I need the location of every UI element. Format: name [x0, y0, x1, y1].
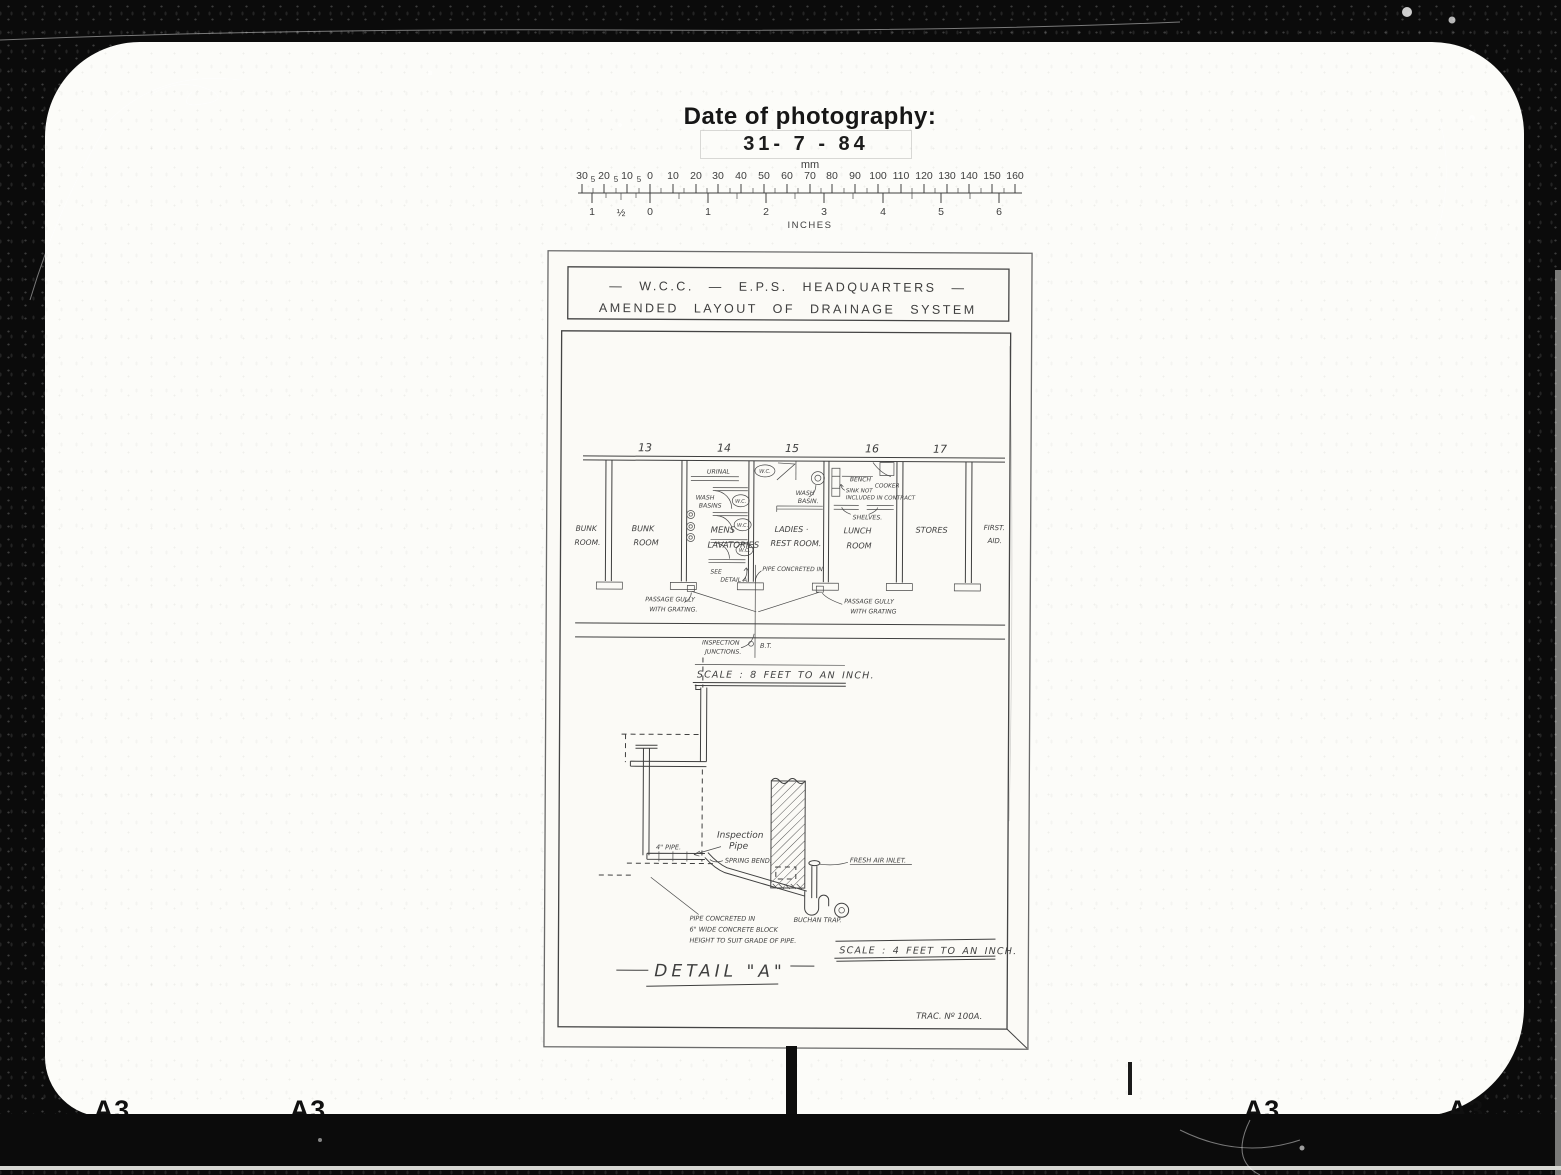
scale-ruler: mm 30 20 10 5 5 5 0 10 20 30 40 50 60 70…: [555, 150, 1035, 235]
ruler-mm-label: 160: [1006, 170, 1024, 182]
urinal-label: URINAL: [707, 469, 731, 476]
ruler-inch-label: 1: [589, 206, 595, 218]
inspection-pipe-label-1: Inspection: [717, 831, 764, 841]
concrete-note-1: PIPE CONCRETED IN: [690, 914, 756, 922]
ruler-inch-label: 6: [996, 206, 1002, 218]
cooker-label: COOKER: [875, 483, 900, 489]
ruler-mm-label: 150: [983, 170, 1001, 182]
ruler-inch-label: 4: [880, 206, 886, 218]
film-bottom-border: [0, 1114, 1561, 1166]
ruler-mm-label: 80: [826, 170, 838, 182]
ruler-mm-label: 30: [712, 170, 724, 182]
date-of-photography-label: Date of photography:: [660, 103, 960, 131]
gully-left-label-2: WITH GRATING.: [649, 606, 697, 613]
room-label: FIRST.: [984, 524, 1005, 532]
room-label: LADIES ·: [775, 525, 809, 534]
gully-right-label-2: WITH GRATING: [850, 608, 896, 615]
ruler-inch-major-ticks: [592, 193, 999, 203]
wc-label: W.C.: [737, 523, 748, 529]
detail-scale-text: SCALE : 4 FEET TO AN INCH.: [839, 945, 1017, 957]
spring-bend-label: SPRING BEND.: [725, 857, 772, 865]
gully-left-label-1: PASSAGE GULLY: [645, 596, 696, 603]
film-right-edge: [1555, 270, 1561, 1175]
see-detail-label-1: SEE: [710, 569, 722, 576]
wash-basins-label-1: WASH: [696, 495, 715, 502]
grid-number: 16: [865, 442, 879, 455]
room-label: REST ROOM.: [771, 539, 822, 548]
ruler-mm-label: 40: [735, 170, 747, 182]
room-label: AID.: [987, 537, 1003, 545]
ruler-mm-label: 20: [598, 170, 610, 182]
ruler-mm-label: 10: [621, 170, 633, 182]
ruler-inch-minor-ticks: [606, 193, 970, 200]
wc-label: W.C.: [735, 499, 746, 505]
registration-tick: [1128, 1062, 1132, 1095]
room-label: ROOM: [847, 541, 872, 550]
room-label: ROOM: [634, 538, 659, 547]
sink-note-1: SINK NOT: [846, 488, 873, 494]
sheet-outer-border: [544, 251, 1032, 1050]
bt-label: B.T.: [760, 642, 772, 650]
ruler-mm-label-small: 5: [591, 175, 596, 184]
room-label: LUNCH: [844, 526, 872, 535]
ruler-mm-label: 140: [960, 170, 978, 182]
ruler-mm-minor-ticks: [593, 188, 1004, 193]
fresh-air-inlet-label: FRESH AIR INLET.: [850, 856, 906, 864]
ruler-mm-label: 90: [849, 170, 861, 182]
ruler-mm-label: 100: [869, 170, 887, 182]
pipe-concreted-label: PIPE CONCRETED IN.: [762, 566, 825, 573]
wash-basin-label-2: BASIN.: [798, 498, 819, 505]
concrete-note-2: 6" WIDE CONCRETE BLOCK: [690, 925, 779, 933]
film-sync-bar: [786, 1046, 797, 1116]
ruler-mm-label: 70: [804, 170, 816, 182]
sink-note-2: INCLUDED IN CONTRACT: [846, 495, 916, 501]
ruler-mm-label-small: 5: [637, 175, 642, 184]
wash-basins-label-2: BASINS: [699, 503, 722, 510]
room-label: LAVATORIES: [708, 541, 760, 551]
ruler-mm-label: 110: [893, 170, 910, 182]
ruler-inch-label: 2: [763, 206, 769, 218]
sheet-title-line2: AMENDED LAYOUT OF DRAINAGE SYSTEM: [599, 301, 977, 317]
ruler-mm-label: 120: [915, 170, 933, 182]
ruler-mm-major-ticks: [582, 184, 1015, 193]
inspection-label-1: INSPECTION: [702, 640, 740, 647]
room-label: MENS: [711, 526, 736, 536]
ruler-mm-label: 50: [758, 170, 770, 182]
ruler-inch-label: 3: [821, 206, 827, 218]
ruler-inch-label: 1: [705, 206, 711, 218]
ruler-mm-label: 30: [576, 170, 588, 182]
room-label: BUNK: [632, 524, 655, 533]
ruler-mm-label: 10: [667, 170, 679, 182]
tracing-number: TRAC. Nº 100A.: [916, 1012, 982, 1022]
ruler-inch-label: ½: [617, 207, 626, 219]
wash-basin-label-1: WASH: [796, 490, 815, 497]
grid-number: 13: [638, 441, 652, 454]
concrete-note-3: HEIGHT TO SUIT GRADE OF PIPE.: [689, 936, 796, 945]
inspection-pipe-label-2: Pipe: [729, 842, 749, 852]
four-inch-pipe-label: 4" PIPE.: [656, 843, 681, 851]
detail-title: DETAIL "A": [654, 961, 786, 982]
grid-number: 17: [933, 443, 947, 456]
ruler-mm-label: 130: [938, 170, 956, 182]
ruler-mm-label: 60: [781, 170, 793, 182]
ruler-inch-label: 5: [938, 206, 944, 218]
buchan-trap-label: BUCHAN TRAP.: [794, 916, 842, 924]
microfilm-frame: Date of photography: 31- 7 - 84 mm 30 20…: [0, 0, 1561, 1175]
sheet-title-line1: — W.C.C. — E.P.S. HEADQUARTERS —: [609, 279, 966, 295]
bench-label: BENCH: [850, 476, 872, 483]
ruler-mm-label-small: 5: [614, 175, 619, 184]
grid-number: 15: [785, 442, 799, 455]
ruler-mm-label: 20: [690, 170, 702, 182]
ruler-mm-label: 0: [647, 170, 653, 182]
ruler-mm-labels: 30 20 10 5 5 5 0 10 20 30 40 50 60 70 80…: [576, 170, 1024, 184]
plan-scale-text: SCALE : 8 FEET TO AN INCH.: [697, 670, 875, 682]
drainage-drawing-sheet: — W.C.C. — E.P.S. HEADQUARTERS — AMENDED…: [540, 245, 1040, 1060]
grid-number: 14: [717, 442, 731, 455]
wc-label: W.C.: [759, 469, 771, 475]
room-label: ROOM.: [575, 538, 601, 547]
ruler-inch-labels: 1 ½ 0 1 2 3 4 5 6: [589, 206, 1002, 219]
room-label: STORES: [916, 526, 948, 535]
inspection-label-2: JUNCTIONS.: [703, 649, 741, 656]
shelves-label: SHELVES.: [853, 514, 883, 521]
ruler-inch-label: 0: [647, 206, 653, 218]
film-edge-strip: [0, 1166, 1561, 1170]
room-label: BUNK: [576, 524, 598, 533]
ruler-unit-inches: INCHES: [788, 220, 833, 231]
gully-right-label-1: PASSAGE GULLY: [844, 598, 895, 605]
